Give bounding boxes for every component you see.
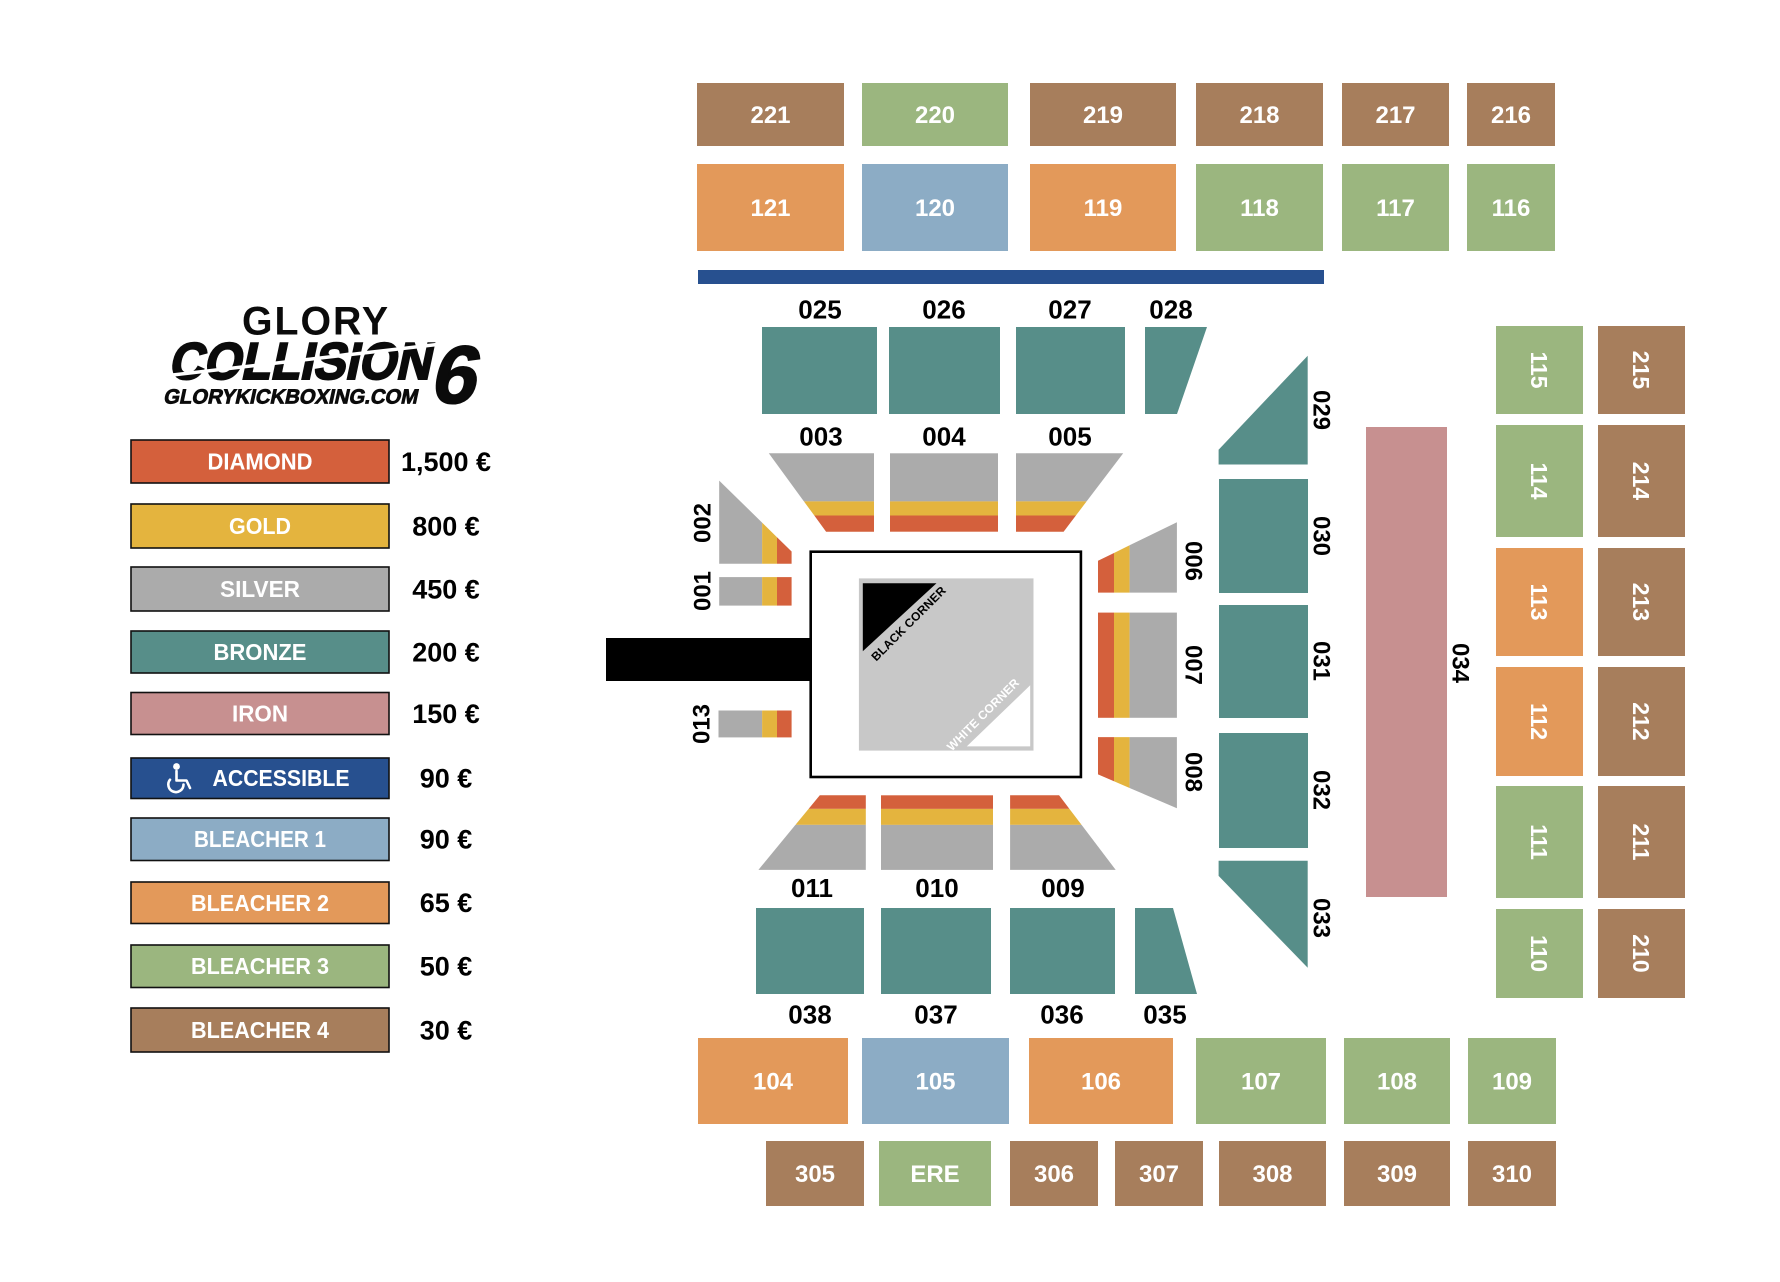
- svg-text:031: 031: [1308, 641, 1335, 681]
- svg-text:108: 108: [1377, 1069, 1417, 1096]
- svg-text:028: 028: [1149, 295, 1192, 325]
- svg-text:026: 026: [922, 295, 965, 325]
- svg-text:90 €: 90 €: [420, 764, 473, 794]
- svg-text:109: 109: [1492, 1069, 1532, 1096]
- svg-text:308: 308: [1252, 1161, 1292, 1188]
- svg-text:BLEACHER 3: BLEACHER 3: [191, 953, 329, 979]
- svg-text:112: 112: [1526, 703, 1552, 740]
- svg-text:150 €: 150 €: [412, 699, 480, 729]
- svg-text:800 €: 800 €: [412, 512, 480, 542]
- svg-text:214: 214: [1628, 462, 1654, 501]
- svg-text:50 €: 50 €: [420, 952, 473, 982]
- svg-text:114: 114: [1526, 462, 1552, 499]
- svg-text:30 €: 30 €: [420, 1016, 473, 1046]
- svg-text:105: 105: [915, 1069, 955, 1096]
- svg-text:310: 310: [1492, 1161, 1532, 1188]
- svg-text:005: 005: [1048, 422, 1091, 452]
- svg-text:220: 220: [915, 102, 955, 129]
- svg-text:213: 213: [1628, 583, 1654, 621]
- svg-text:034: 034: [1447, 643, 1474, 684]
- svg-text:116: 116: [1492, 195, 1531, 222]
- svg-text:113: 113: [1526, 583, 1552, 620]
- svg-text:221: 221: [750, 102, 790, 129]
- svg-text:027: 027: [1048, 295, 1091, 325]
- svg-text:038: 038: [788, 1000, 831, 1030]
- svg-text:305: 305: [795, 1161, 835, 1188]
- svg-text:008: 008: [1180, 752, 1207, 792]
- svg-text:035: 035: [1143, 1000, 1186, 1030]
- svg-text:121: 121: [750, 195, 790, 222]
- svg-text:218: 218: [1239, 102, 1279, 129]
- svg-text:010: 010: [915, 873, 958, 903]
- svg-text:306: 306: [1034, 1161, 1074, 1188]
- svg-text:025: 025: [798, 295, 841, 325]
- svg-text:120: 120: [915, 195, 955, 222]
- svg-text:ERE: ERE: [910, 1161, 959, 1188]
- svg-text:119: 119: [1084, 195, 1123, 222]
- svg-text:104: 104: [753, 1069, 794, 1096]
- svg-text:115: 115: [1526, 351, 1552, 388]
- svg-text:BLEACHER 2: BLEACHER 2: [191, 890, 329, 916]
- svg-text:212: 212: [1628, 702, 1654, 740]
- svg-text:219: 219: [1083, 102, 1123, 129]
- svg-text:307: 307: [1139, 1161, 1179, 1188]
- svg-text:107: 107: [1241, 1069, 1281, 1096]
- svg-text:118: 118: [1240, 195, 1279, 222]
- svg-text:BRONZE: BRONZE: [214, 639, 307, 665]
- svg-text:1,500 €: 1,500 €: [401, 447, 491, 477]
- svg-text:65 €: 65 €: [420, 888, 473, 918]
- svg-text:029: 029: [1308, 390, 1335, 430]
- svg-text:030: 030: [1308, 516, 1335, 556]
- svg-text:216: 216: [1491, 102, 1531, 129]
- svg-text:117: 117: [1376, 195, 1415, 222]
- svg-text:200 €: 200 €: [412, 638, 480, 668]
- svg-text:001: 001: [690, 571, 717, 611]
- svg-text:033: 033: [1308, 898, 1335, 938]
- svg-text:BLEACHER 4: BLEACHER 4: [191, 1017, 329, 1043]
- svg-text:210: 210: [1628, 934, 1654, 972]
- svg-text:215: 215: [1628, 351, 1654, 390]
- svg-text:90 €: 90 €: [420, 825, 473, 855]
- svg-text:002: 002: [690, 503, 717, 543]
- svg-text:DIAMOND: DIAMOND: [208, 449, 313, 475]
- svg-text:110: 110: [1526, 935, 1552, 972]
- svg-text:GOLD: GOLD: [229, 513, 291, 539]
- svg-text:032: 032: [1308, 770, 1335, 810]
- svg-text:037: 037: [914, 1000, 957, 1030]
- svg-text:211: 211: [1628, 823, 1654, 860]
- svg-text:217: 217: [1375, 102, 1415, 129]
- svg-text:011: 011: [791, 873, 833, 903]
- svg-text:BLEACHER 1: BLEACHER 1: [194, 826, 326, 852]
- svg-text:IRON: IRON: [232, 701, 288, 727]
- svg-text:036: 036: [1040, 1000, 1083, 1030]
- svg-text:009: 009: [1041, 873, 1084, 903]
- svg-text:013: 013: [689, 704, 716, 744]
- svg-text:450 €: 450 €: [412, 575, 480, 605]
- svg-text:004: 004: [922, 422, 966, 452]
- svg-text:SILVER: SILVER: [220, 576, 300, 602]
- svg-text:106: 106: [1081, 1069, 1121, 1096]
- svg-text:006: 006: [1180, 541, 1207, 581]
- svg-text:ACCESSIBLE: ACCESSIBLE: [213, 765, 350, 791]
- svg-text:007: 007: [1180, 645, 1207, 685]
- svg-text:309: 309: [1377, 1161, 1417, 1188]
- svg-text:111: 111: [1526, 824, 1552, 860]
- svg-text:003: 003: [799, 422, 842, 452]
- svg-text:GLORYKICKBOXING.COM: GLORYKICKBOXING.COM: [162, 386, 421, 409]
